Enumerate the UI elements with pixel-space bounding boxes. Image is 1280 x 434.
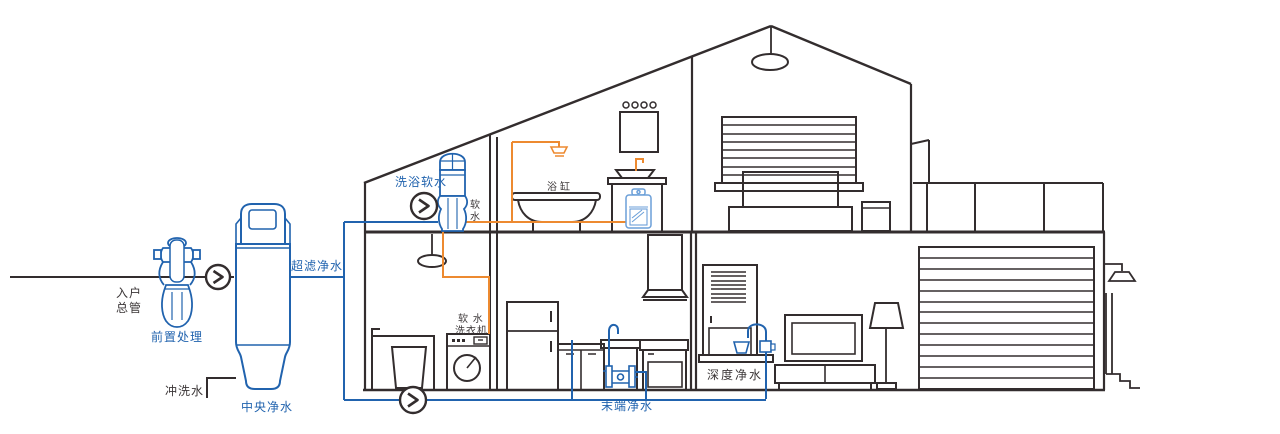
label-soft-water-char1: 软 <box>470 198 481 211</box>
label-terminal-purifier: 末端净水 <box>601 399 653 413</box>
bed-headboard <box>743 172 838 207</box>
label-bath-softener: 洗浴软水 <box>395 175 447 189</box>
diagram-canvas: 入户 总管 前置处理 冲洗水 中央净水 超滤净水 洗浴软水 软 水 浴缸 软 水… <box>0 0 1280 434</box>
range-hood <box>643 235 687 300</box>
tv-stand <box>775 365 875 389</box>
label-soft-washer-line2: 洗衣机 <box>455 324 488 337</box>
garage <box>919 247 1140 389</box>
label-deep-purifier: 深度净水 <box>707 367 763 382</box>
window-sill <box>715 183 863 191</box>
label-pre-treatment: 前置处理 <box>151 329 203 344</box>
balcony-railing <box>913 183 1103 231</box>
label-bathtub: 浴缸 <box>547 180 573 193</box>
oven <box>640 340 688 390</box>
wall-lamp <box>1104 264 1135 281</box>
interior-wall-left <box>490 134 497 390</box>
refrigerator <box>507 302 558 390</box>
label-flush-water: 冲洗水 <box>165 383 204 398</box>
flow-arrow-icon <box>400 387 426 413</box>
outdoor-steps <box>1106 293 1140 388</box>
interior-wall-right <box>691 57 696 390</box>
laundry-room <box>372 234 490 390</box>
pendant-lamp-bedroom <box>752 27 788 70</box>
flow-arrow-icon <box>206 265 230 289</box>
mirror-light <box>641 102 647 108</box>
bath-softener-tank <box>438 153 467 231</box>
roof-edge-piece <box>911 140 929 183</box>
garage-roller-door <box>919 247 1094 389</box>
roof-left-slope <box>364 26 771 183</box>
label-soft-water-char2: 水 <box>470 211 481 223</box>
utility-sink <box>372 329 434 390</box>
roof-right-slope <box>771 26 911 84</box>
bed-base <box>729 207 852 231</box>
sink-bowl <box>616 170 654 178</box>
pendant-lamp-laundry <box>418 234 446 267</box>
terminal-filter-device <box>603 366 638 387</box>
kitchen-faucet <box>609 325 618 348</box>
washing-machine <box>447 334 490 390</box>
whole-house-water-diagram: 入户 总管 前置处理 冲洗水 中央净水 超滤净水 洗浴软水 软 水 浴缸 软 水… <box>0 0 1280 434</box>
central-purifier-device <box>236 204 290 389</box>
soft-water-pipes <box>443 142 643 334</box>
bathroom-purifier-device <box>626 189 651 228</box>
label-soft-washer-line1: 软 水 <box>458 312 484 325</box>
label-ultrafiltration: 超滤净水 <box>291 258 343 273</box>
pre-treatment-filter <box>154 238 200 327</box>
bedroom-window-blinds <box>715 117 863 191</box>
purified-water-pipes <box>289 222 766 400</box>
tv <box>785 315 862 361</box>
flush-water-pipe <box>207 378 236 398</box>
mirror-light <box>650 102 656 108</box>
nightstand <box>862 202 890 231</box>
dispenser-counter <box>699 355 773 362</box>
label-inlet-main-line2: 总管 <box>116 300 142 315</box>
bed <box>729 172 852 231</box>
label-inlet-main-line1: 入户 <box>116 285 142 300</box>
kitchen-cabinets <box>558 344 604 390</box>
flow-arrow-icon <box>411 193 437 219</box>
bathroom-mirror <box>620 102 658 152</box>
water-cup <box>734 342 749 353</box>
shower-head-icon <box>551 147 567 156</box>
bathtub <box>512 193 600 231</box>
mirror-light <box>632 102 638 108</box>
kitchen <box>507 235 688 390</box>
mirror-light <box>623 102 629 108</box>
label-central-purifier: 中央净水 <box>241 399 293 414</box>
bedroom <box>715 27 890 231</box>
